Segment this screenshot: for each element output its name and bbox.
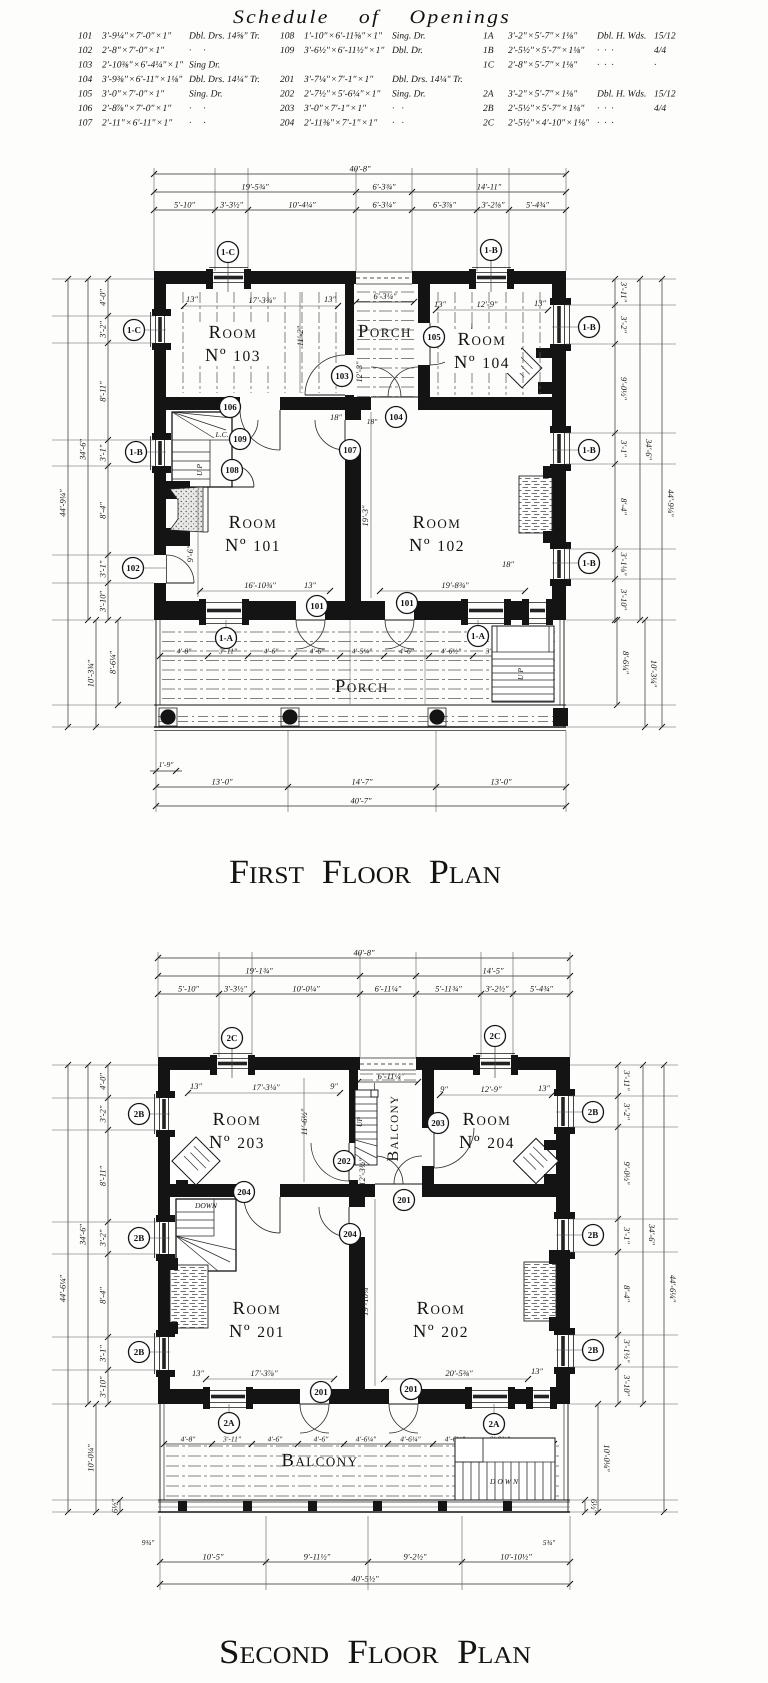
svg-text:1-A: 1-A: [219, 633, 233, 643]
svg-text:Sing. Dr.: Sing. Dr.: [392, 90, 426, 100]
svg-text:2B: 2B: [134, 1347, 145, 1357]
svg-text:3′-11″: 3′-11″: [622, 1069, 632, 1091]
svg-text:101: 101: [400, 598, 414, 608]
svg-text:· · ·: · · ·: [597, 46, 614, 56]
svg-text:8′-4″: 8′-4″: [619, 498, 629, 515]
svg-text:11′-6½″: 11′-6½″: [299, 1108, 309, 1135]
svg-text:6′-11¼″: 6′-11¼″: [378, 1071, 405, 1081]
svg-text:Nº 102: Nº 102: [409, 536, 465, 556]
svg-text:44′-9¼″: 44′-9¼″: [666, 489, 676, 517]
svg-text:Room: Room: [458, 330, 507, 350]
svg-text:109: 109: [280, 46, 295, 56]
svg-text:2B: 2B: [588, 1107, 599, 1117]
svg-text:1′-9″: 1′-9″: [159, 760, 175, 769]
svg-text:19′-1¾″: 19′-1¾″: [245, 966, 273, 976]
svg-text:5′-4¾″: 5′-4¾″: [526, 200, 550, 210]
svg-text:13″: 13″: [186, 294, 199, 304]
svg-text:103: 103: [78, 61, 93, 71]
svg-text:4′-6¼″: 4′-6¼″: [356, 1435, 377, 1444]
svg-text:3′-10″: 3′-10″: [98, 591, 108, 613]
svg-text:3′-1″: 3′-1″: [98, 444, 108, 462]
svg-text:5¾″: 5¾″: [543, 1538, 556, 1547]
svg-text:14′-5″: 14′-5″: [483, 966, 504, 976]
svg-text:101: 101: [78, 32, 92, 42]
svg-text:L.C.: L.C.: [215, 430, 229, 439]
svg-text:10′-5″: 10′-5″: [203, 1552, 224, 1562]
svg-text:6′-3⅞″: 6′-3⅞″: [433, 200, 457, 210]
svg-text:17′-3¼″: 17′-3¼″: [252, 1082, 280, 1092]
svg-text:· ·: · ·: [189, 119, 206, 129]
svg-text:105: 105: [78, 90, 93, 100]
svg-text:34′-6″: 34′-6″: [644, 438, 654, 460]
svg-text:17′-3⅞″: 17′-3⅞″: [250, 1368, 278, 1378]
svg-text:Sing Dr.: Sing Dr.: [189, 61, 220, 71]
svg-text:15/12: 15/12: [654, 32, 676, 42]
svg-text:4′-6¼″: 4′-6¼″: [400, 1435, 421, 1444]
svg-text:2'-11" × 6'-11" × 1": 2'-11" × 6'-11" × 1": [102, 119, 173, 129]
svg-text:9″: 9″: [330, 1081, 338, 1091]
svg-text:18″: 18″: [367, 417, 379, 426]
svg-text:3′-10″: 3′-10″: [619, 588, 629, 610]
svg-text:34′-6″: 34′-6″: [647, 1223, 657, 1245]
svg-text:2'-8" × 5'-7" × 1⅛": 2'-8" × 5'-7" × 1⅛": [508, 61, 578, 71]
svg-text:3′-3½″: 3′-3½″: [223, 984, 248, 994]
svg-text:12′-9″: 12′-9″: [477, 299, 498, 309]
svg-text:3′-2″: 3′-2″: [98, 1229, 108, 1247]
svg-text:2'-5½" × 5'-7" × 1⅛": 2'-5½" × 5'-7" × 1⅛": [508, 46, 585, 56]
svg-text:104: 104: [78, 75, 93, 85]
svg-text:13″: 13″: [534, 298, 547, 308]
svg-text:Sing. Dr.: Sing. Dr.: [189, 90, 223, 100]
svg-text:9′-0½″: 9′-0½″: [619, 377, 629, 401]
svg-text:4′-6″: 4′-6″: [314, 1435, 330, 1444]
svg-text:Balcony: Balcony: [281, 1451, 358, 1471]
svg-text:6½″: 6½″: [589, 1499, 599, 1514]
svg-text:201: 201: [404, 1384, 418, 1394]
svg-text:3′-1″: 3′-1″: [619, 439, 629, 457]
svg-text:2B: 2B: [588, 1230, 599, 1240]
svg-text:Room: Room: [213, 1110, 262, 1130]
svg-text:13″: 13″: [538, 1083, 551, 1093]
svg-text:19′-3″: 19′-3″: [360, 505, 370, 526]
svg-text:· ·: · ·: [392, 119, 404, 129]
svg-text:13″: 13″: [190, 1081, 203, 1091]
svg-text:3′-2″: 3′-2″: [622, 1102, 632, 1120]
svg-text:1C: 1C: [483, 61, 495, 71]
svg-text:Balcony: Balcony: [385, 1094, 402, 1161]
svg-text:3'-9⅜" × 6'-11" × 1⅛": 3'-9⅜" × 6'-11" × 1⅛": [101, 75, 183, 85]
svg-text:4′-6″: 4′-6″: [268, 1435, 284, 1444]
svg-text:10′-10½″: 10′-10½″: [500, 1552, 532, 1562]
svg-text:1-B: 1-B: [582, 445, 596, 455]
svg-text:U P: U P: [195, 464, 204, 476]
svg-text:44′-6¼″: 44′-6¼″: [58, 1274, 68, 1302]
svg-text:10′-0¼″: 10′-0¼″: [602, 1444, 612, 1472]
svg-text:13′-0″: 13′-0″: [212, 777, 233, 787]
svg-text:5′-4¾″: 5′-4¾″: [530, 984, 554, 994]
svg-text:204: 204: [237, 1187, 251, 1197]
svg-text:U P: U P: [516, 668, 525, 680]
svg-text:· · ·: · · ·: [597, 119, 614, 129]
svg-text:2B: 2B: [134, 1109, 145, 1119]
svg-text:4′-8″: 4′-8″: [177, 647, 193, 656]
svg-text:3′-2″: 3′-2″: [98, 1105, 108, 1123]
svg-text:Room: Room: [229, 513, 278, 533]
svg-text:Room: Room: [233, 1299, 282, 1319]
svg-text:2A: 2A: [489, 1419, 501, 1429]
svg-text:1-B: 1-B: [582, 558, 596, 568]
svg-text:3′-10″: 3′-10″: [98, 1376, 108, 1398]
svg-text:18″: 18″: [502, 559, 515, 569]
svg-text:4′-6″: 4′-6″: [399, 647, 415, 656]
svg-text:1-C: 1-C: [127, 325, 141, 335]
svg-text:2C: 2C: [227, 1033, 238, 1043]
svg-text:2A: 2A: [483, 90, 494, 100]
svg-text:·: ·: [654, 61, 656, 71]
svg-text:Nº 101: Nº 101: [225, 536, 281, 556]
svg-text:6′-3¼″: 6′-3¼″: [373, 291, 397, 301]
svg-text:3'-7¼" × 7'-1" × 1": 3'-7¼" × 7'-1" × 1": [303, 75, 374, 85]
svg-text:14′-7″: 14′-7″: [352, 777, 373, 787]
svg-text:Porch: Porch: [335, 677, 389, 697]
svg-text:Nº 104: Nº 104: [454, 353, 510, 373]
svg-text:9″: 9″: [440, 1084, 448, 1094]
svg-text:· ·: · ·: [189, 46, 206, 56]
svg-text:17′-3¾″: 17′-3¾″: [248, 295, 276, 305]
svg-text:8′-4″: 8′-4″: [98, 1287, 108, 1304]
svg-text:Nº 203: Nº 203: [209, 1133, 265, 1153]
svg-text:8′-4″: 8′-4″: [622, 1285, 632, 1302]
svg-text:3′-11″: 3′-11″: [222, 1435, 242, 1444]
svg-text:6′-11¼″: 6′-11¼″: [375, 984, 402, 994]
svg-text:2C: 2C: [490, 1031, 501, 1041]
svg-text:8′-6¼″: 8′-6¼″: [621, 651, 631, 675]
svg-text:DOWN: DOWN: [489, 1477, 520, 1486]
svg-text:2'-7½" × 5'-6¼" × 1": 2'-7½" × 5'-6¼" × 1": [304, 90, 381, 100]
svg-text:9′-0½″: 9′-0½″: [622, 1161, 632, 1185]
svg-text:4′-6″: 4′-6″: [264, 647, 280, 656]
svg-text:4′-5¼″: 4′-5¼″: [352, 647, 373, 656]
svg-text:4′-0″: 4′-0″: [98, 1073, 108, 1090]
svg-text:201: 201: [314, 1387, 328, 1397]
svg-text:Dbl. Drs. 14¼" Tr.: Dbl. Drs. 14¼" Tr.: [391, 75, 463, 85]
svg-text:104: 104: [389, 412, 403, 422]
svg-text:13″: 13″: [531, 1366, 544, 1376]
svg-text:6½″: 6½″: [110, 1498, 120, 1513]
svg-text:1-C: 1-C: [221, 247, 235, 257]
svg-text:Sing. Dr.: Sing. Dr.: [392, 32, 426, 42]
svg-text:14′-11″: 14′-11″: [477, 182, 502, 192]
svg-text:First Floor Plan: First Floor Plan: [229, 854, 501, 891]
svg-text:15/12: 15/12: [654, 90, 676, 100]
svg-text:4/4: 4/4: [654, 104, 666, 114]
svg-text:Dbl. H. Wds.: Dbl. H. Wds.: [596, 32, 646, 42]
svg-text:2B: 2B: [483, 104, 494, 114]
svg-text:9¾″: 9¾″: [142, 1538, 155, 1547]
svg-text:3′-1½″: 3′-1½″: [622, 1338, 632, 1363]
svg-text:Room: Room: [209, 323, 258, 343]
svg-text:3'-2" × 5'-7" × 1⅛": 3'-2" × 5'-7" × 1⅛": [507, 90, 578, 100]
svg-text:10′-3¾″: 10′-3¾″: [86, 659, 96, 687]
svg-text:3′-2″: 3′-2″: [98, 321, 108, 339]
svg-text:4′-0″: 4′-0″: [98, 289, 108, 306]
svg-text:DOWN: DOWN: [194, 1201, 218, 1210]
svg-text:13″: 13″: [434, 299, 447, 309]
svg-text:106: 106: [223, 402, 237, 412]
svg-text:109: 109: [233, 434, 247, 444]
svg-text:3′-1″: 3′-1″: [98, 560, 108, 578]
svg-text:201: 201: [280, 75, 294, 85]
svg-text:1-B: 1-B: [582, 322, 596, 332]
svg-text:40′-7″: 40′-7″: [351, 796, 372, 806]
svg-text:10′-0¼″: 10′-0¼″: [86, 1444, 96, 1472]
svg-text:8′-4″: 8′-4″: [98, 502, 108, 519]
svg-text:10′-0¼″: 10′-0¼″: [292, 984, 320, 994]
svg-text:1-A: 1-A: [471, 631, 485, 641]
svg-text:Nº 103: Nº 103: [205, 346, 261, 366]
svg-text:3′-11″: 3′-11″: [619, 281, 629, 303]
svg-text:3'-9¼" × 7'-0" × 1": 3'-9¼" × 7'-0" × 1": [101, 32, 172, 42]
svg-text:9′-2½″: 9′-2½″: [403, 1552, 427, 1562]
svg-text:16′-10¾″: 16′-10¾″: [244, 580, 276, 590]
svg-text:3'-0" × 7'-0" × 1": 3'-0" × 7'-0" × 1": [101, 90, 165, 100]
svg-text:1'-10" × 6'-11⅝" × 1": 1'-10" × 6'-11⅝" × 1": [304, 32, 383, 42]
svg-text:· · ·: · · ·: [597, 104, 614, 114]
svg-text:5′-10″: 5′-10″: [174, 200, 195, 210]
svg-text:4′-6½″: 4′-6½″: [441, 647, 462, 656]
svg-text:107: 107: [78, 119, 94, 129]
svg-text:44′-6¼″: 44′-6¼″: [668, 1275, 678, 1303]
svg-text:4′-8″: 4′-8″: [181, 1435, 197, 1444]
svg-text:2'-11⅜" × 7'-1" × 1": 2'-11⅜" × 7'-1" × 1": [304, 119, 378, 129]
svg-text:107: 107: [343, 445, 357, 455]
svg-text:204: 204: [280, 119, 295, 129]
svg-text:Nº 204: Nº 204: [459, 1133, 515, 1153]
svg-text:4′-6″: 4′-6″: [310, 647, 326, 656]
svg-text:Nº 202: Nº 202: [413, 1322, 469, 1342]
svg-text:4/4: 4/4: [654, 46, 666, 56]
svg-text:19′-5¾″: 19′-5¾″: [241, 182, 269, 192]
svg-text:· ·: · ·: [189, 104, 206, 114]
svg-text:3′-10″: 3′-10″: [622, 1374, 632, 1396]
svg-text:3′-1″: 3′-1″: [622, 1226, 632, 1244]
svg-text:9′-6″: 9′-6″: [185, 545, 195, 562]
svg-text:2'-8" × 7'-0" × 1": 2'-8" × 7'-0" × 1": [102, 46, 165, 56]
svg-text:2'-5½" × 4'-10" × 1⅛": 2'-5½" × 4'-10" × 1⅛": [508, 119, 590, 129]
svg-text:102: 102: [126, 563, 140, 573]
svg-text:2'-10⅜" × 6'-4¼" × 1": 2'-10⅜" × 6'-4¼" × 1": [102, 61, 184, 71]
svg-text:2C: 2C: [483, 119, 495, 129]
svg-text:13″: 13″: [324, 294, 337, 304]
svg-text:18″: 18″: [330, 412, 343, 422]
svg-text:2B: 2B: [134, 1233, 145, 1243]
svg-text:Second Floor Plan: Second Floor Plan: [219, 1634, 531, 1671]
svg-text:108: 108: [225, 465, 239, 475]
svg-text:8′-11″: 8′-11″: [98, 1165, 108, 1186]
svg-text:9′-11½″: 9′-11½″: [304, 1552, 331, 1562]
svg-text:Dbl. Drs. 14⅝" Tr.: Dbl. Drs. 14⅝" Tr.: [188, 32, 260, 42]
svg-text:Room: Room: [417, 1299, 466, 1319]
svg-text:12′-3″: 12′-3″: [354, 361, 364, 382]
svg-text:8′-11″: 8′-11″: [98, 381, 108, 402]
svg-text:Room: Room: [413, 513, 462, 533]
svg-text:Dbl. Drs. 14¼" Tr.: Dbl. Drs. 14¼" Tr.: [188, 75, 260, 85]
svg-text:13″: 13″: [304, 580, 317, 590]
svg-text:Dbl. H. Wds.: Dbl. H. Wds.: [596, 90, 646, 100]
svg-text:3'-2" × 5'-7" × 1⅛": 3'-2" × 5'-7" × 1⅛": [507, 32, 578, 42]
svg-text:Nº 201: Nº 201: [229, 1322, 285, 1342]
svg-text:44′-9¼″: 44′-9¼″: [58, 489, 68, 517]
svg-text:2B: 2B: [588, 1345, 599, 1355]
svg-text:1-B: 1-B: [129, 447, 143, 457]
svg-text:201: 201: [397, 1195, 411, 1205]
svg-text:3'-6½" × 6'-11½" × 1": 3'-6½" × 6'-11½" × 1": [303, 46, 385, 56]
svg-text:3′-2½″: 3′-2½″: [484, 984, 509, 994]
svg-text:8′-6¼″: 8′-6¼″: [108, 650, 118, 674]
svg-text:1A: 1A: [483, 32, 494, 42]
svg-text:105: 105: [427, 332, 441, 342]
svg-text:3′-2⅛″: 3′-2⅛″: [480, 200, 505, 210]
svg-text:· ·: · ·: [392, 104, 404, 114]
svg-text:1-B: 1-B: [484, 245, 498, 255]
svg-text:203: 203: [280, 104, 295, 114]
svg-text:3′-1″: 3′-1″: [98, 1345, 108, 1363]
svg-text:20′-5⅜″: 20′-5⅜″: [445, 1368, 473, 1378]
svg-text:Dbl. Dr.: Dbl. Dr.: [391, 46, 423, 56]
svg-text:19′-10¼″: 19′-10¼″: [360, 1284, 370, 1316]
svg-text:Schedule of Openings: Schedule of Openings: [233, 7, 511, 28]
svg-text:40′-8″: 40′-8″: [350, 164, 371, 174]
svg-text:203: 203: [431, 1118, 445, 1128]
svg-text:12′-3½″: 12′-3½″: [357, 1158, 367, 1186]
svg-text:3'-0" × 7'-1" × 1": 3'-0" × 7'-1" × 1": [303, 104, 367, 114]
svg-text:3′-2″: 3′-2″: [619, 315, 629, 333]
svg-text:40′-5½″: 40′-5½″: [351, 1574, 379, 1584]
svg-text:102: 102: [78, 46, 93, 56]
svg-text:108: 108: [280, 32, 295, 42]
svg-text:5′-10″: 5′-10″: [178, 984, 199, 994]
svg-text:Room: Room: [463, 1110, 512, 1130]
svg-text:2'-8⅞" × 7'-0" × 1": 2'-8⅞" × 7'-0" × 1": [102, 104, 172, 114]
svg-text:12′-9″: 12′-9″: [481, 1084, 502, 1094]
svg-text:2'-5½" × 5'-7" × 1⅛": 2'-5½" × 5'-7" × 1⅛": [508, 104, 585, 114]
svg-text:106: 106: [78, 104, 93, 114]
svg-text:101: 101: [310, 601, 324, 611]
svg-text:6′-3¾″: 6′-3¾″: [372, 182, 396, 192]
svg-text:3′-1⅛″: 3′-1⅛″: [619, 551, 629, 576]
svg-text:40′-8″: 40′-8″: [354, 948, 375, 958]
svg-text:10′-3¼″: 10′-3¼″: [649, 660, 659, 688]
svg-text:1B: 1B: [483, 46, 494, 56]
svg-text:19′-8¾″: 19′-8¾″: [441, 580, 469, 590]
svg-text:2A: 2A: [224, 1418, 236, 1428]
svg-text:6′-3¼″: 6′-3¼″: [372, 200, 396, 210]
svg-text:13′-0″: 13′-0″: [491, 777, 512, 787]
svg-text:5′-11¾″: 5′-11¾″: [435, 984, 462, 994]
svg-text:· · ·: · · ·: [597, 61, 614, 71]
svg-text:13″: 13″: [192, 1368, 205, 1378]
svg-text:UP: UP: [355, 1117, 364, 1127]
svg-text:202: 202: [280, 90, 295, 100]
svg-text:10′-4¼″: 10′-4¼″: [288, 200, 316, 210]
svg-text:202: 202: [337, 1156, 351, 1166]
svg-text:204: 204: [343, 1229, 357, 1239]
svg-text:34′-6″: 34′-6″: [78, 1224, 88, 1246]
svg-text:Porch: Porch: [358, 322, 412, 342]
svg-text:103: 103: [335, 371, 349, 381]
svg-text:3′-3½″: 3′-3½″: [219, 200, 244, 210]
svg-text:34′-6″: 34′-6″: [78, 439, 88, 461]
